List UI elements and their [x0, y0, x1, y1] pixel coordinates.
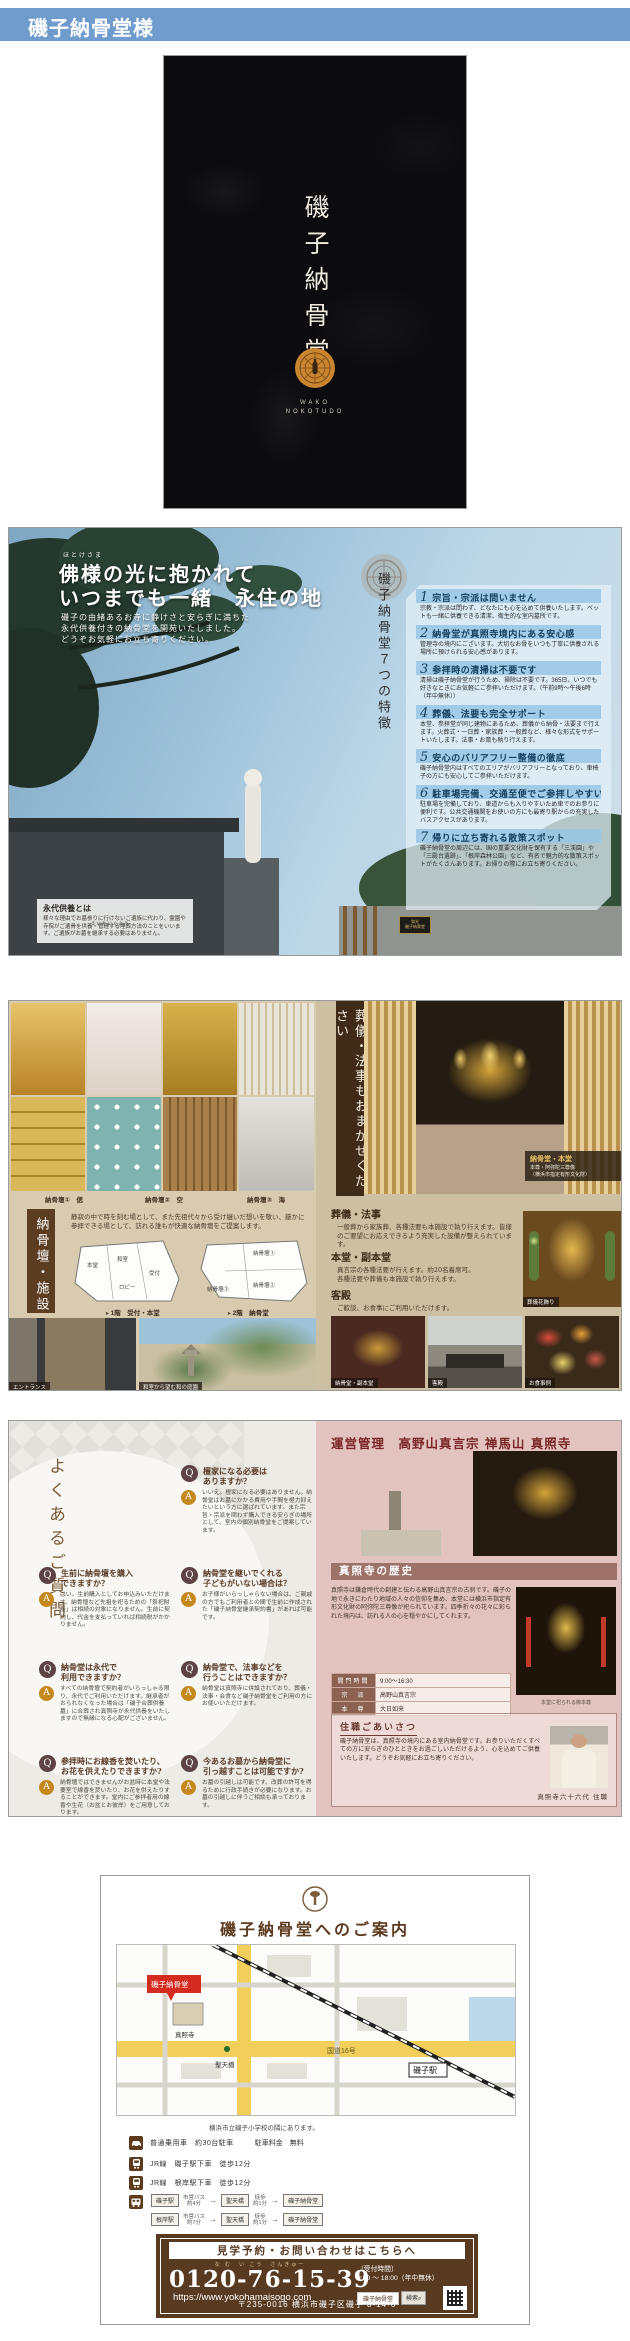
page-cover[interactable]: 磯子納骨堂 WAKO NOKOTUDO — [163, 55, 467, 509]
svg-text:磯子納骨堂: 磯子納骨堂 — [151, 1979, 189, 1989]
faq-item: Q生前に納骨壇を購入 できますか？ Aはい。生前購入としてお申込みいただけます。… — [39, 1567, 171, 1630]
funeral-section: 葬儀・法事 一般葬から家族葬、各種法要も本施設で執り行えます。皆様のご要望にお応… — [331, 1206, 517, 1249]
svg-text:聖天橋: 聖天橋 — [215, 2060, 235, 2069]
svg-text:国道16号: 国道16号 — [327, 2046, 356, 2055]
feature-item: 5安心のバリアフリー整備の徹底 磯子納骨堂内はすべてのエリアがバリアフリーとなっ… — [416, 749, 601, 781]
page-faq-temple-spread[interactable]: よくあるご質問 Q檀家になる必要は ありますか？ Aいいえ。檀家になる必要はあり… — [8, 1420, 622, 1817]
faq-item: Q納骨堂は永代で 利用できますか？ Aすべての納骨壇で契約者がいらっしゃる限り、… — [39, 1661, 171, 1724]
guest-hall-section: 客殿 ご歓談、お食事にご利用いただけます。 — [331, 1287, 517, 1313]
temple-crest-icon — [295, 348, 335, 388]
faq-item: Q納骨堂で、法事などを 行うことはできますか？ A納骨堂は真照寺に併設されており… — [181, 1661, 313, 1709]
page-access[interactable]: 磯子納骨堂へのご案内 磯子駅 国道16号 聖天橋 真照寺 — [100, 1875, 530, 2325]
customer-header-bar: 磯子納骨堂様 — [0, 8, 630, 41]
page-features-spread[interactable]: ほとけさま 佛様の光に抱かれて いつまでも一緒 永住の地 磯子の由緒あるお寺に静… — [8, 527, 622, 956]
nokotsudan-photo-3 — [163, 1003, 237, 1095]
svg-text:ロビー: ロビー — [119, 1283, 136, 1291]
nokotsudan-photo-7 — [163, 1097, 237, 1191]
svg-text:納骨壇②: 納骨壇② — [253, 1281, 276, 1289]
svg-text:受付: 受付 — [149, 1269, 161, 1277]
customer-name: 磯子納骨堂様 — [28, 12, 154, 41]
gate-sign-plaque: 和光 磯子納骨堂 — [399, 916, 431, 934]
faq-item: Q納骨堂を継いでくれる 子どもがいない場合は？ Aお子様がいらっしゃらない場合は… — [181, 1567, 313, 1622]
transport-train-row-2: JR線 根岸駅下車 徒歩12分 — [129, 2176, 251, 2190]
car-icon — [129, 2136, 143, 2150]
faq-item: Q参拝時にお線香を焚いたり、 お花を供えたりできますか? A納骨壇ではできません… — [39, 1755, 171, 1817]
svg-text:納骨壇③: 納骨壇③ — [207, 1285, 230, 1293]
train-icon — [129, 2176, 143, 2190]
svg-text:和室: 和室 — [117, 1255, 129, 1263]
history-body: 真照寺は鎌倉時代の創建と伝わる高野山真言宗の古刹です。磯子の地で永きにわたり地域… — [331, 1587, 511, 1621]
eitai-title: 永代供養とは — [43, 903, 187, 914]
buddha-photo — [516, 1587, 616, 1695]
eitai-kuyo-note: えいたいくよう 永代供養とは 様々な理由でお墓参りに行けないご遺族に代わり、霊園… — [37, 899, 193, 943]
cover-title: 磯子納骨堂 — [297, 194, 333, 374]
meal-photo: お食事例 — [525, 1316, 619, 1388]
brochure-preview-page: 磯子納骨堂様 磯子納骨堂 WAKO NOKOTUDO — [0, 0, 630, 2341]
bus-route-1: 磯子駅 市営バス 約4分→ 聖天橋 徒歩 約1分→ 磯子納骨堂 — [151, 2194, 323, 2207]
temple-info-table: 開門時間9:00～16:30 宗 派高野山真言宗 本 尊大日如来 — [331, 1673, 511, 1716]
svg-text:真照寺: 真照寺 — [175, 2030, 195, 2039]
temple-title: 運営管理 高野山真言宗 禅馬山 真照寺 — [331, 1433, 571, 1452]
main-hall-caption: 納骨堂・本堂 本尊・阿弥陀三尊像 （横浜市指定有形文化財） — [525, 1151, 621, 1181]
greeting-body: 磯子納骨堂は、真照寺の境内にある室内納骨堂です。お参りいただくすべての方に安らぎ… — [340, 1738, 540, 1763]
nokotsudan-label-1: 納骨壇① 偲 — [45, 1194, 83, 1204]
garden-photo: 和室から望む和の庭園 — [139, 1318, 316, 1391]
nokotsudan-photo-1 — [11, 1003, 85, 1095]
feature-item: 2納骨堂が真照寺境内にある安心感 管理寺の境内にございます。大切なお骨をいつも丁… — [416, 625, 601, 657]
access-map: 磯子駅 国道16号 聖天橋 真照寺 磯子納骨堂 — [116, 1944, 516, 2116]
bus-icon — [129, 2195, 143, 2209]
eitai-body: 様々な理由でお墓参りに行けないご遺族に代わり、霊園や寺院がご遺骨を供養・管理する… — [43, 916, 187, 939]
floor1-caption: 1階 受付・本堂 — [105, 1307, 160, 1317]
greeting-title: 住職ごあいさつ — [340, 1720, 417, 1736]
features-vertical-title: 磯子納骨堂７つの特徴 — [373, 572, 392, 762]
cover-roman-caption: WAKO NOKOTUDO — [164, 399, 466, 417]
priest-photo — [550, 1726, 608, 1788]
feature-item: 4葬儀、法要も完全サポート 本堂、参拝堂が同じ建物にあるため、葬儀から納骨・法要… — [416, 705, 601, 745]
funeral-title-strip: 葬儀・法事もおまかせください — [336, 1001, 364, 1196]
phone-number[interactable]: 0120-76-15-39 — [169, 2266, 371, 2293]
reception-hours: 〔受付時間〕 9:00 ～ 18:00（年中無休） — [357, 2265, 439, 2283]
faq-item: Q今あるお墓から納骨堂に 引っ越すことは可能ですか? Aお墓の引越しは可能です。… — [181, 1755, 313, 1810]
contact-banner: 見学予約・お問い合わせはこちらへ — [169, 2242, 465, 2259]
transport-bus-label-row — [129, 2195, 143, 2209]
greeting-box: 住職ごあいさつ 磯子納骨堂は、真照寺の境内にある室内納骨堂です。お参りいただくす… — [331, 1713, 617, 1807]
nokotsudan-photo-5 — [11, 1097, 85, 1191]
contact-box: 見学予約・お問い合わせはこちらへ な む い こう さんきゅー 0120-76-… — [156, 2234, 478, 2318]
buddha-caption: 本堂に祀られる御本尊 — [516, 1699, 616, 1706]
svg-text:本堂: 本堂 — [87, 1261, 99, 1269]
address: 〒235-0016 横浜市磯子区磯子 8-14-6 — [161, 2299, 473, 2310]
transport-train-row-1: JR線 磯子駅下車 徒歩12分 — [129, 2157, 251, 2171]
bus-route-2: 根岸駅 市営バス 約7分→ 聖天橋 徒歩 約1分→ 磯子納骨堂 — [151, 2213, 323, 2226]
nokotsudan-label-2: 納骨壇② 空 — [145, 1194, 183, 1204]
nokotsudan-label-3: 納骨壇③ 海 — [247, 1194, 285, 1204]
history-title: 真照寺の歴史 — [331, 1563, 617, 1580]
sub-hall-photo: 納骨堂・副本堂 — [331, 1316, 425, 1388]
transport-car-row: 普通乗用車 約30台駐車 駐車料金 無料 — [129, 2136, 304, 2150]
feature-item: 1宗旨・宗派は問いません 宗教・宗派は問わず、どなたにも心を込めて供養いたします… — [416, 589, 601, 621]
facility-section-title-box: 納骨壇・施設 — [27, 1209, 55, 1313]
temple-gate-photo — [331, 1451, 469, 1556]
nokotsudan-photo-4 — [239, 1003, 314, 1095]
svg-text:納骨壇①: 納骨壇① — [253, 1249, 276, 1257]
facility-section-title: 納骨壇・施設 — [32, 1217, 51, 1313]
priest-signature: 真照寺六十六代 住職 — [537, 1791, 608, 1801]
lead-text: 磯子の由緒あるお寺に静けさと安らぎに満ちた 永代供養付きの納骨堂を開苑いたしまし… — [61, 612, 250, 645]
access-title: 磯子納骨堂へのご案内 — [101, 1916, 529, 1940]
map-caption: 横浜市立磯子小学校の隣にあります。 — [209, 2122, 319, 2132]
facility-intro: 静寂の中で時を刻む場として、また先祖代々から受け継いだ想いを敬い、厳かに参拝でき… — [71, 1213, 307, 1231]
feature-item: 3参拝時の清掃は不要です 清掃は磯子納骨堂が行うため、掃除は不要です。365日、… — [416, 661, 601, 701]
funeral-flower-photo: 葬儀花飾り — [523, 1211, 621, 1307]
access-crest-icon — [302, 1886, 328, 1912]
entrance-photo: エントランス — [9, 1318, 136, 1391]
guest-hall-photo: 客殿 — [428, 1316, 522, 1388]
nokotsudan-photo-8 — [239, 1097, 314, 1191]
floor2-caption: 2階 納骨堂 — [227, 1307, 269, 1317]
headline-line2: いつまでも一緒 永住の地 — [59, 582, 323, 611]
nokotsudan-photo-6 — [87, 1097, 161, 1191]
temple-altar-photo — [473, 1451, 617, 1556]
features-panel: 1宗旨・宗派は問いません 宗教・宗派は問わず、どなたにも心を込めて供養いたします… — [406, 585, 611, 910]
feature-item: 7帰りに立ち寄れる散策スポット 磯子納骨堂の周辺には、国の重要文化財を保有する「… — [416, 829, 601, 869]
train-icon — [129, 2157, 143, 2171]
feature-item: 6駐車場完備、交通至便でご参拝しやすい立地 駐車場を完備しており、車道からも入り… — [416, 785, 601, 825]
hall-section: 本堂・副本堂 真言宗の各種法要が行えます。約20名着席可。 各種法要や葬儀も本施… — [331, 1249, 517, 1283]
svg-text:磯子駅: 磯子駅 — [413, 2065, 437, 2075]
nokotsudan-photo-2 — [87, 1003, 161, 1095]
faq-item: Q檀家になる必要は ありますか？ Aいいえ。檀家になる必要はありません。納骨堂は… — [181, 1465, 313, 1536]
eitai-furigana: えいたいくよう — [91, 921, 130, 927]
floor-plans: 本堂和室 ロビー受付 納骨壇①納骨壇②納骨壇③ — [67, 1239, 311, 1310]
page-facility-spread[interactable]: 納骨壇① 偲 納骨壇② 空 納骨壇③ 海 納骨壇・施設 静寂の中で時を刻む場とし… — [8, 1000, 622, 1391]
